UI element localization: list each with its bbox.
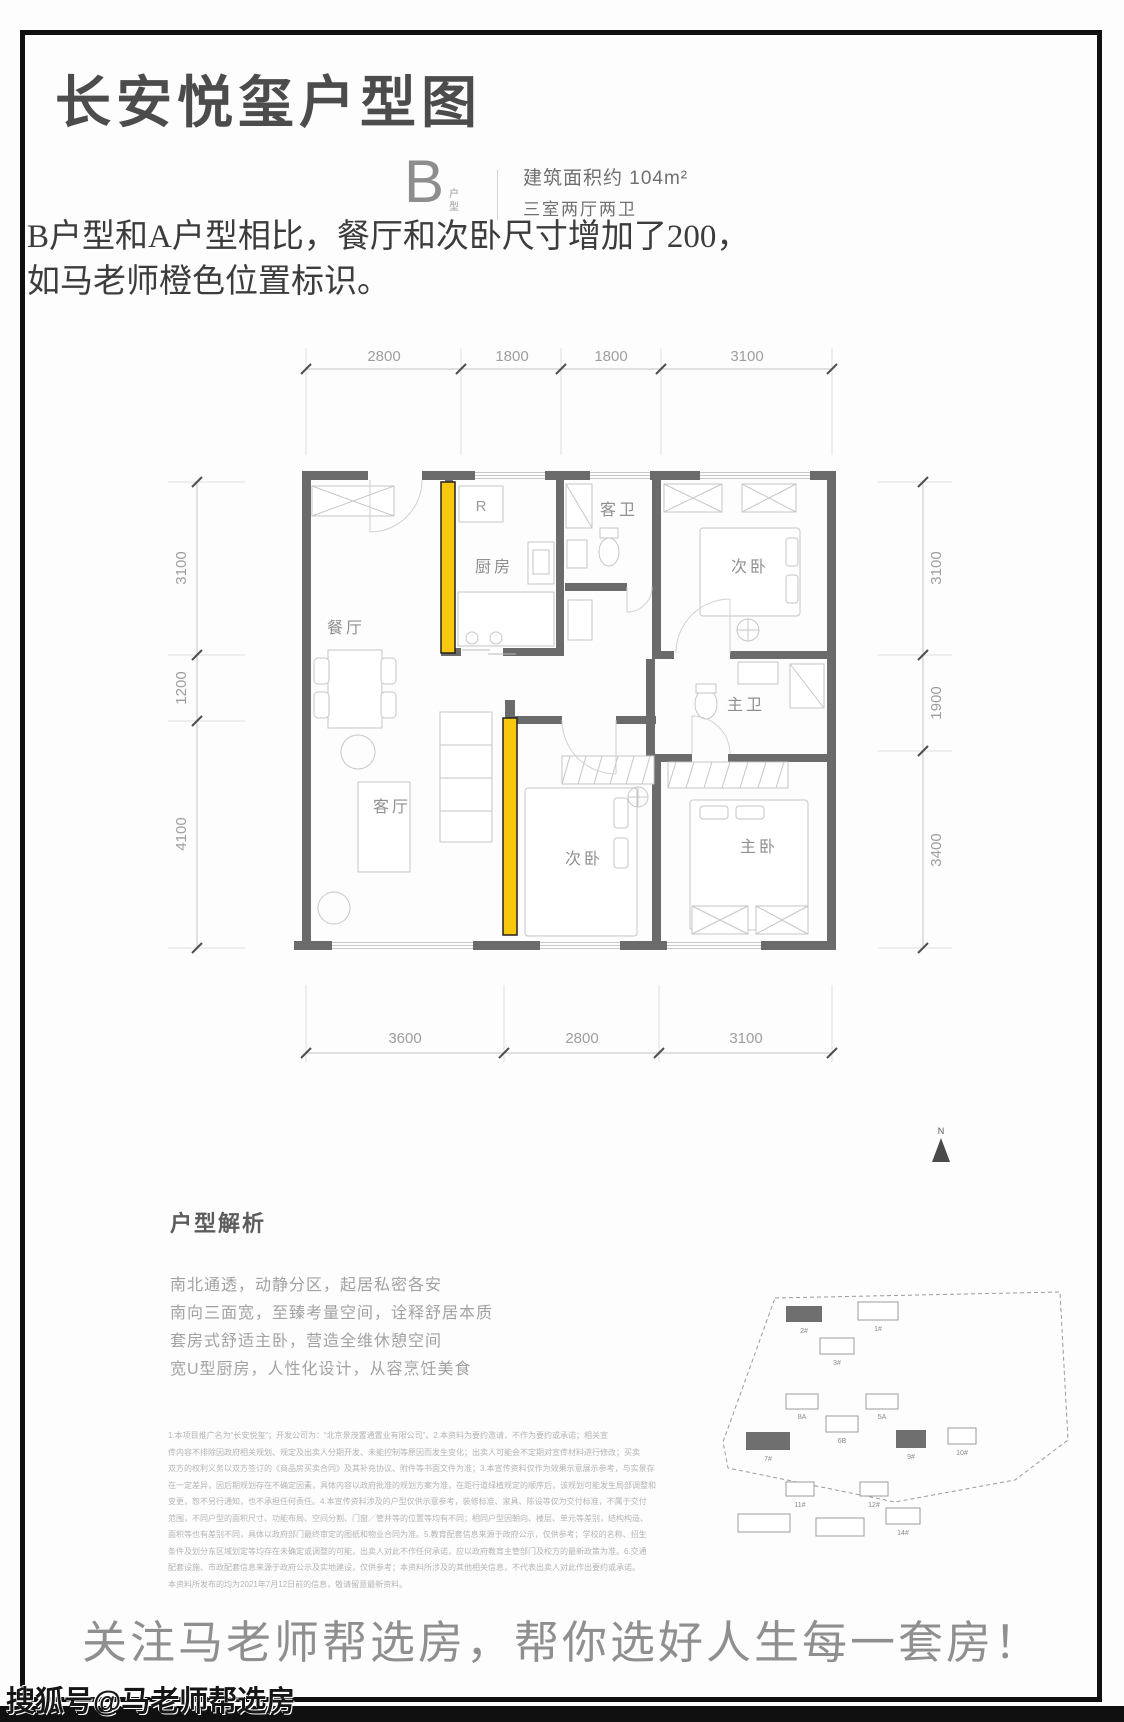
dim-top-2: 1800 [495, 348, 528, 365]
disclaimer-line: 范围，不同户型的面积尺寸、功能布局、空间分割、门窗／管井等的位置等均有不同；相同… [168, 1511, 638, 1528]
comparison-note: B户型和A户型相比，餐厅和次卧尺寸增加了200， 如马老师橙色位置标识。 [27, 215, 749, 305]
unit-area: 建筑面积约 104m² [523, 163, 688, 190]
siteplan: N 2# 1# 3# 8A 5A 6B 7# 9# 11# 12# 13# [700, 1118, 1100, 1538]
analysis-point: 宽U型厨房，人性化设计，从容烹饪美食 [170, 1356, 493, 1384]
building [866, 1394, 898, 1409]
analysis-points: 南北通透，动静分区，起居私密各安 南向三面宽，至臻考量空间，诠释舒居本质 套房式… [170, 1272, 493, 1384]
site-buildings: 2# 1# 3# 8A 5A 6B 7# 9# 11# 12# 13# 13# … [738, 1302, 976, 1538]
dim-bottom-2: 2800 [565, 1030, 598, 1047]
building-label: 2# [800, 1328, 808, 1335]
disclaimer-line: 本资料所发布的均为2021年7月12日前的信息，敬请留意最新资料。 [168, 1577, 638, 1594]
dim-left-3: 4100 [173, 817, 190, 850]
dim-right-1: 3100 [928, 551, 945, 584]
analysis-heading: 户型解析 [170, 1206, 266, 1238]
comparison-note-line1: B户型和A户型相比，餐厅和次卧尺寸增加了200， [27, 215, 749, 260]
building [816, 1518, 864, 1536]
building [820, 1338, 854, 1354]
unit-divider [497, 170, 498, 220]
disclaimer-line: 变更，恕不另行通知，也不承担任何责任。4.本宣传资料涉及的户型仅供示意参考，装修… [168, 1494, 638, 1511]
building-label: 1# [874, 1326, 882, 1333]
watermark: 搜狐号@马老师帮选房 [6, 1678, 295, 1720]
room-label-bedroom-top: 次卧 [731, 558, 769, 576]
room-label-master-bedroom: 主卧 [740, 838, 778, 856]
building-label: 10# [956, 1450, 968, 1457]
building [826, 1416, 858, 1432]
building-label: 6B [838, 1438, 847, 1445]
room-label-master-bath: 主卫 [727, 696, 765, 714]
building-label: 11# [794, 1502, 805, 1509]
floorplan: 2800 1800 1800 3100 3600 2800 3100 3100 … [150, 320, 970, 1080]
building-highlighted [746, 1432, 790, 1450]
disclaimer-line: 传内容不排除因政府相关规划、规定及出卖人分期开发、未能控制等原因而发生变化；出卖… [168, 1445, 638, 1462]
north-arrow: N [932, 1126, 950, 1162]
page-title: 长安悦玺户型图 [55, 58, 482, 139]
building-label: 8A [798, 1414, 807, 1421]
building-label: 12# [868, 1502, 880, 1509]
dim-right-2: 1900 [928, 686, 945, 719]
dim-left-1: 3100 [173, 551, 190, 584]
frame-left [20, 30, 25, 1702]
dim-top-4: 3100 [730, 348, 763, 365]
disclaimer-line: 在一定差异，因后期规划存在不确定因素，具体内容以政府批准的规划方案为准，在距行道… [168, 1478, 638, 1495]
disclaimer-line: 1.本项目推广名为“长安悦玺”；开发公司为：“北京景茂置通置业有限公司”。2.本… [168, 1428, 638, 1445]
room-label-living: 客厅 [373, 798, 411, 816]
room-label-bedroom-mid: 次卧 [565, 850, 603, 868]
building [860, 1482, 888, 1496]
highlight-bar-kitchen [441, 482, 455, 653]
comparison-note-line2: 如马老师橙色位置标识。 [27, 260, 749, 305]
dim-top-3: 1800 [594, 348, 627, 365]
room-label-guest-bath: 客卫 [600, 501, 638, 519]
building-label: 7# [764, 1456, 772, 1463]
building [786, 1394, 818, 1409]
building-label: 5A [878, 1414, 887, 1421]
room-label-kitchen: 厨房 [475, 558, 513, 576]
analysis-point: 南向三面宽，至臻考量空间，诠释舒居本质 [170, 1300, 493, 1328]
analysis-point: 套房式舒适主卧，营造全维休憩空间 [170, 1328, 493, 1356]
unit-label: 户型 [449, 188, 462, 214]
dim-bottom-3: 3100 [729, 1030, 762, 1047]
disclaimer-line: 双方的权利义务以双方签订的《商品房买卖合同》及其补充协议、附件等书面文件为准；3… [168, 1461, 638, 1478]
frame-top [20, 30, 1102, 35]
dim-top-1: 2800 [367, 348, 400, 365]
dim-right-3: 3400 [928, 833, 945, 866]
building-highlighted [896, 1430, 926, 1448]
building-label: 14# [897, 1530, 909, 1537]
building-highlighted [786, 1306, 822, 1322]
disclaimer-text: 1.本项目推广名为“长安悦玺”；开发公司为：“北京景茂置通置业有限公司”。2.本… [168, 1428, 638, 1593]
page-canvas: 长安悦玺户型图 B 户型 建筑面积约 104m² 三室两厅两卫 B户型和A户型相… [0, 0, 1124, 1722]
building [886, 1508, 920, 1524]
north-label: N [938, 1126, 945, 1136]
building [738, 1514, 790, 1532]
building [948, 1428, 976, 1444]
building [786, 1482, 814, 1496]
analysis-point: 南北通透，动静分区，起居私密各安 [170, 1272, 493, 1300]
building-label: 3# [833, 1360, 841, 1367]
dim-bottom-1: 3600 [388, 1030, 421, 1047]
footer-slogan: 关注马老师帮选房，帮你选好人生每一套房！ [0, 1606, 1124, 1671]
room-label-dining: 餐厅 [327, 619, 365, 637]
building-label: 9# [907, 1454, 915, 1461]
dim-left-2: 1200 [173, 671, 190, 704]
disclaimer-line: 面积等也有差别不同，具体以政府部门最终审定的图纸和物业合同为准。5.教育配套信息… [168, 1527, 638, 1544]
unit-letter: B [404, 152, 444, 212]
disclaimer-line: 配套设施、市政配套信息来源于政府公示及实地建设，仅供参考；本资料所涉及的其他相关… [168, 1560, 638, 1577]
fridge-label: R [476, 498, 487, 515]
highlight-bar-bedroom [503, 718, 517, 935]
building [858, 1302, 898, 1320]
disclaimer-line: 条件及划分东区域划定等均存在未确定或调整的可能，出卖人对此不作任何承诺，应以政府… [168, 1544, 638, 1561]
